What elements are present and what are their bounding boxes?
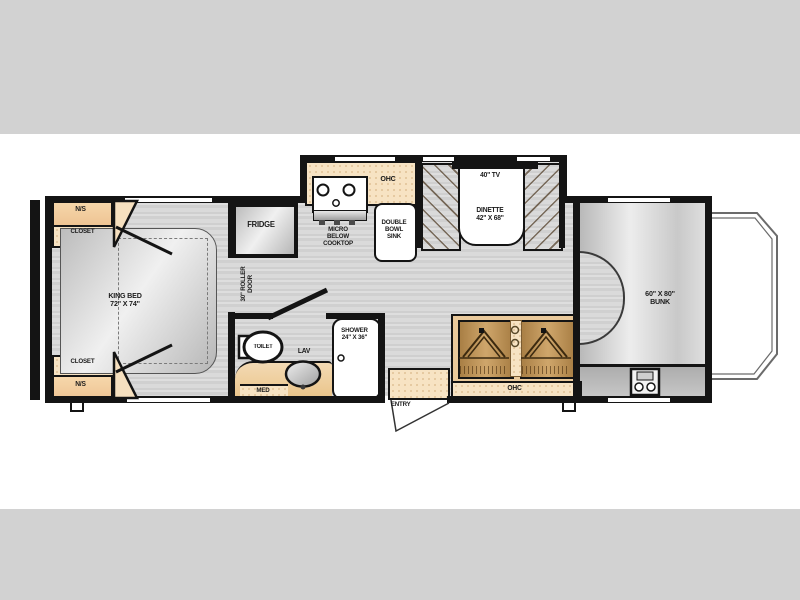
window <box>335 157 395 161</box>
wall-bath-top-right <box>326 313 385 319</box>
window <box>125 198 212 202</box>
slideout-end-wall <box>30 200 40 400</box>
range-knob <box>349 220 355 225</box>
wall-bunk-left <box>573 196 580 403</box>
wall-bath-right <box>378 313 385 403</box>
seat-front-hatch <box>460 366 508 374</box>
wall-bunk-right <box>705 196 712 403</box>
window <box>127 398 210 402</box>
label-shower: SHOWER24" X 36" <box>334 327 375 341</box>
bottom-gray-bar <box>0 509 800 600</box>
dash-divider <box>580 364 705 367</box>
nightstand-top <box>52 200 113 228</box>
cooktop <box>312 176 368 213</box>
dinette-bench-left <box>421 163 461 251</box>
cab-hood-outline <box>712 213 777 379</box>
label-med: MED <box>244 387 282 394</box>
seat-console <box>510 320 522 377</box>
floorplan-canvas: N/S CLOSET CLOSET N/S KING BED72" X 74" … <box>0 0 800 600</box>
label-kitchen-ohc: OHC <box>366 175 410 183</box>
label-dinette: DINETTE42" X 68" <box>462 207 519 222</box>
tv-40in <box>452 161 538 169</box>
utility-nub <box>70 401 84 412</box>
seat-front-hatch <box>522 366 570 374</box>
label-double-bowl-sink: DOUBLEBOWLSINK <box>376 219 412 240</box>
window <box>608 398 670 402</box>
window <box>423 157 454 161</box>
label-micro-below-cooktop: MICROBELOWCOOKTOP <box>311 226 364 247</box>
fridge <box>232 203 298 258</box>
label-bunk: 60" X 80"BUNK <box>622 290 698 306</box>
label-fridge: FRIDGE <box>233 221 288 230</box>
range-knob <box>319 220 325 225</box>
label-king-bed: KING BED72" X 74" <box>73 292 178 308</box>
label-entry: ENTRY <box>391 401 423 408</box>
label-lav: LAV <box>291 348 318 356</box>
label-nightstand-top: N/S <box>53 206 107 214</box>
label-roller-door: 30" ROLLERDOOR <box>240 255 254 314</box>
label-nightstand-bottom: N/S <box>53 381 107 389</box>
top-gray-bar <box>0 0 800 134</box>
wall-bed-divider-upper <box>228 203 235 258</box>
wall-dinette-right <box>559 162 565 248</box>
wall-dinette-left <box>415 162 421 248</box>
wall-slide-left-jog <box>300 155 307 203</box>
wall-bed-divider-lower <box>228 312 235 403</box>
window <box>517 157 550 161</box>
wall-bath-top-left <box>228 313 273 319</box>
dinette-bench-right <box>523 163 563 251</box>
label-tv: 40" TV <box>467 172 513 180</box>
range-knob <box>334 220 340 225</box>
label-toilet: TOILET <box>245 344 281 350</box>
dash-band <box>580 367 705 396</box>
entry-cabinet <box>388 368 450 400</box>
window <box>608 198 670 202</box>
label-living-ohc: OHC <box>454 385 575 393</box>
wall-left <box>45 196 52 403</box>
utility-nub <box>562 401 576 412</box>
label-closet-top: CLOSET <box>54 228 112 235</box>
label-closet-bottom: CLOSET <box>54 358 112 365</box>
wall-bottom-left <box>45 396 385 403</box>
